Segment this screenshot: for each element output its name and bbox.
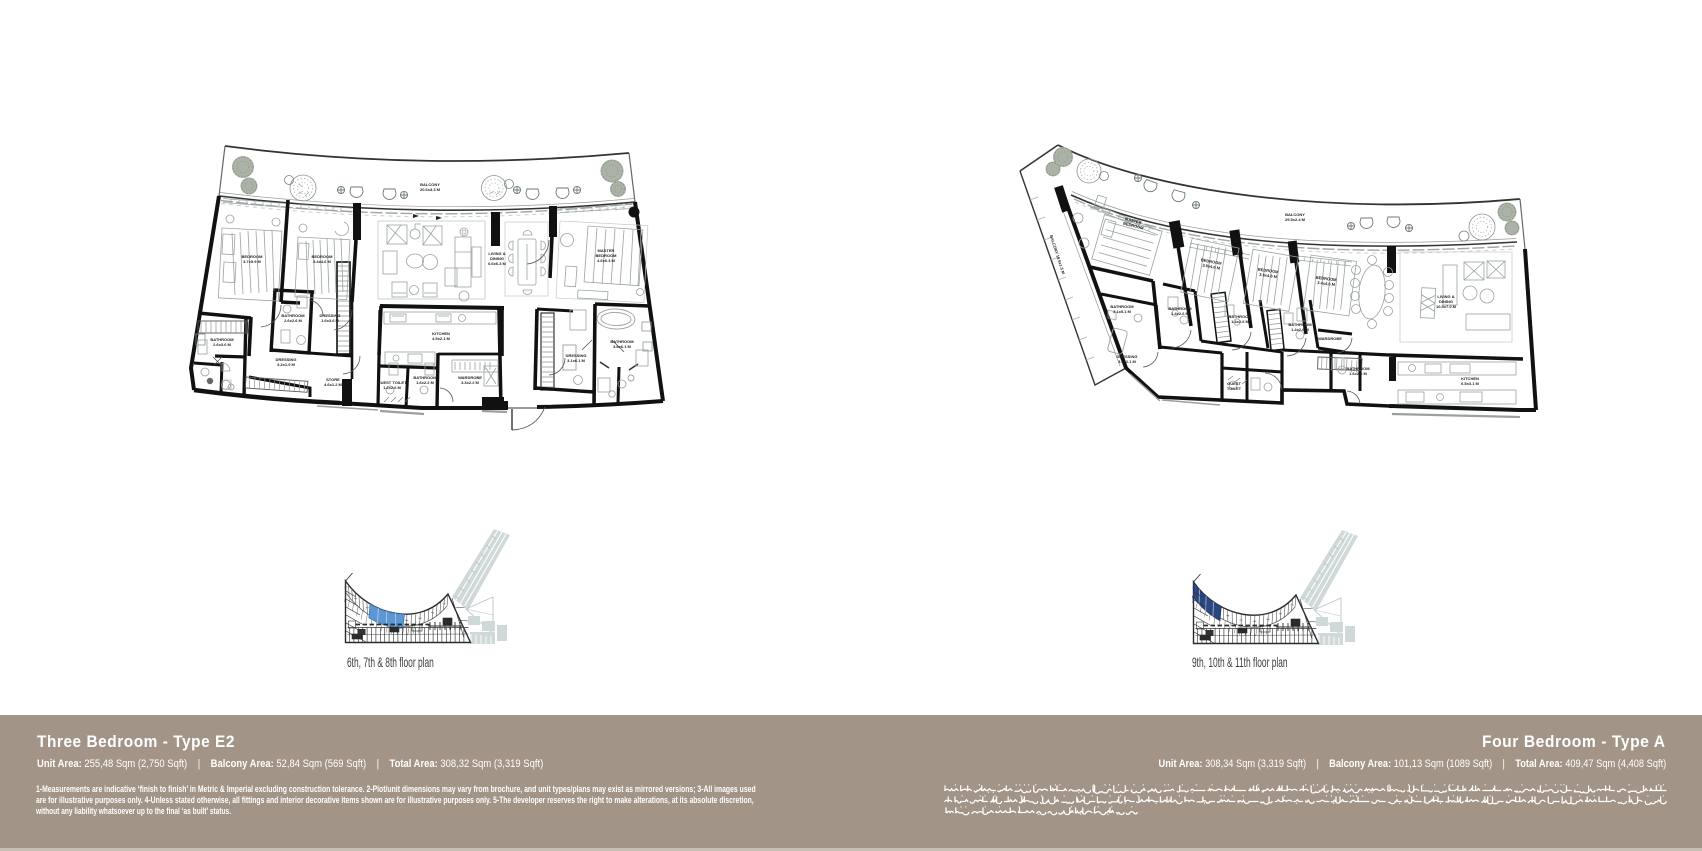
svg-text:1.4x2.6 M: 1.4x2.6 M bbox=[1291, 327, 1309, 332]
svg-text:4.5x2.1 M: 4.5x2.1 M bbox=[432, 336, 450, 341]
svg-text:3.3x2.2 M: 3.3x2.2 M bbox=[461, 380, 479, 385]
svg-text:WARDROBE: WARDROBE bbox=[1318, 336, 1342, 341]
svg-text:1.6x3.6 M: 1.6x3.6 M bbox=[321, 318, 339, 323]
svg-text:3.1x6.1 M: 3.1x6.1 M bbox=[567, 358, 585, 363]
svg-text:3.4x4.6 M: 3.4x4.6 M bbox=[1317, 280, 1336, 287]
svg-text:3.1x5.1 M: 3.1x5.1 M bbox=[1113, 309, 1131, 314]
svg-text:1.6x2.2 M: 1.6x2.2 M bbox=[416, 380, 434, 385]
svg-text:20.6x3.3 M: 20.6x3.3 M bbox=[420, 187, 441, 192]
svg-text:1.4x2.6 M: 1.4x2.6 M bbox=[1231, 319, 1249, 324]
svg-text:4.6x1.2 M: 4.6x1.2 M bbox=[324, 382, 342, 387]
svg-text:3.2x1.9 M: 3.2x1.9 M bbox=[277, 362, 295, 367]
svg-text:2.6x2.6 M: 2.6x2.6 M bbox=[284, 318, 302, 323]
svg-text:TOILET: TOILET bbox=[1227, 386, 1242, 391]
svg-text:3.6x6.1 M: 3.6x6.1 M bbox=[613, 344, 631, 349]
svg-text:3.4x2.1 M: 3.4x2.1 M bbox=[1118, 359, 1136, 364]
svg-text:1.2x2.6 M: 1.2x2.6 M bbox=[383, 385, 401, 390]
svg-text:4.6x6.3 M: 4.6x6.3 M bbox=[597, 258, 615, 263]
svg-text:6.5x3.1 M: 6.5x3.1 M bbox=[1461, 381, 1479, 386]
svg-text:1.4x2.6 M: 1.4x2.6 M bbox=[1171, 311, 1189, 316]
svg-text:BALCONY 19.5x1.5 M: BALCONY 19.5x1.5 M bbox=[1049, 234, 1067, 275]
svg-text:6.6x6.3 M: 6.6x6.3 M bbox=[488, 261, 506, 266]
svg-text:1.6x2.6 M: 1.6x2.6 M bbox=[1349, 371, 1367, 376]
svg-text:3.4x4.6 M: 3.4x4.6 M bbox=[313, 259, 331, 264]
svg-text:3.7x5.9 M: 3.7x5.9 M bbox=[243, 259, 261, 264]
svg-text:29.5x2.4 M: 29.5x2.4 M bbox=[1285, 217, 1306, 222]
svg-text:2.6x3.6 M: 2.6x3.6 M bbox=[213, 342, 231, 347]
svg-text:10.5x7.0 M: 10.5x7.0 M bbox=[1436, 304, 1457, 309]
